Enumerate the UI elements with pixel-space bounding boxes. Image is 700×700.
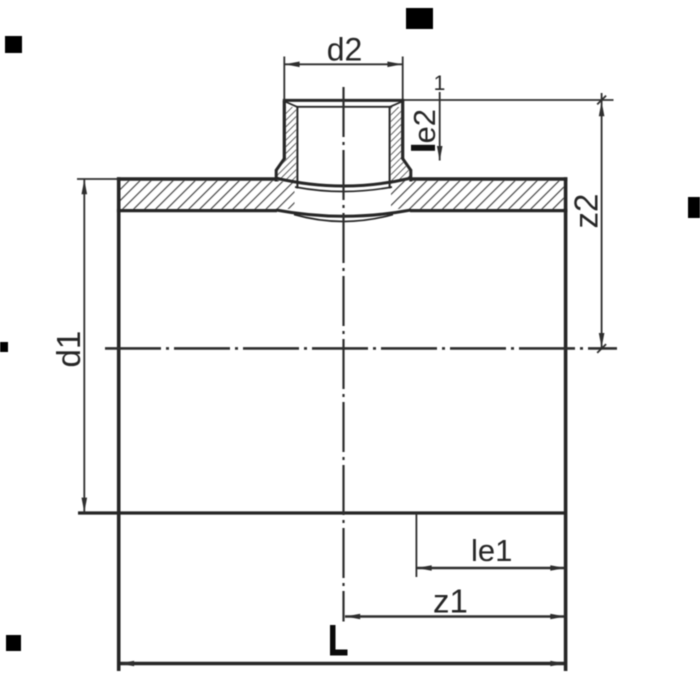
svg-text:e2: e2 <box>407 109 442 143</box>
svg-text:le1: le1 <box>471 533 512 568</box>
svg-text:1: 1 <box>434 72 446 95</box>
svg-text:z2: z2 <box>568 194 605 229</box>
svg-text:d1: d1 <box>50 331 87 368</box>
svg-text:d2: d2 <box>327 32 363 68</box>
svg-text:z1: z1 <box>433 583 468 620</box>
